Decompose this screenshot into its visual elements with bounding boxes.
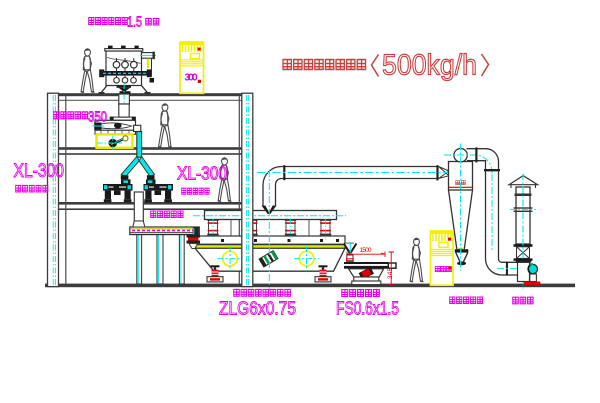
svg-text:1500: 1500: [360, 247, 372, 254]
svg-text:1.5: 1.5: [127, 14, 142, 31]
svg-text:XL-300: XL-300: [177, 164, 227, 184]
svg-text:ZLG6x0.75: ZLG6x0.75: [219, 298, 296, 319]
svg-text:FS0.6x1.5: FS0.6x1.5: [336, 298, 399, 319]
svg-text:300: 300: [185, 73, 198, 84]
svg-text:345: 345: [388, 267, 394, 279]
svg-text:XL-300: XL-300: [14, 161, 65, 182]
svg-text:350: 350: [88, 110, 107, 126]
svg-text:500kg/h: 500kg/h: [382, 50, 477, 82]
